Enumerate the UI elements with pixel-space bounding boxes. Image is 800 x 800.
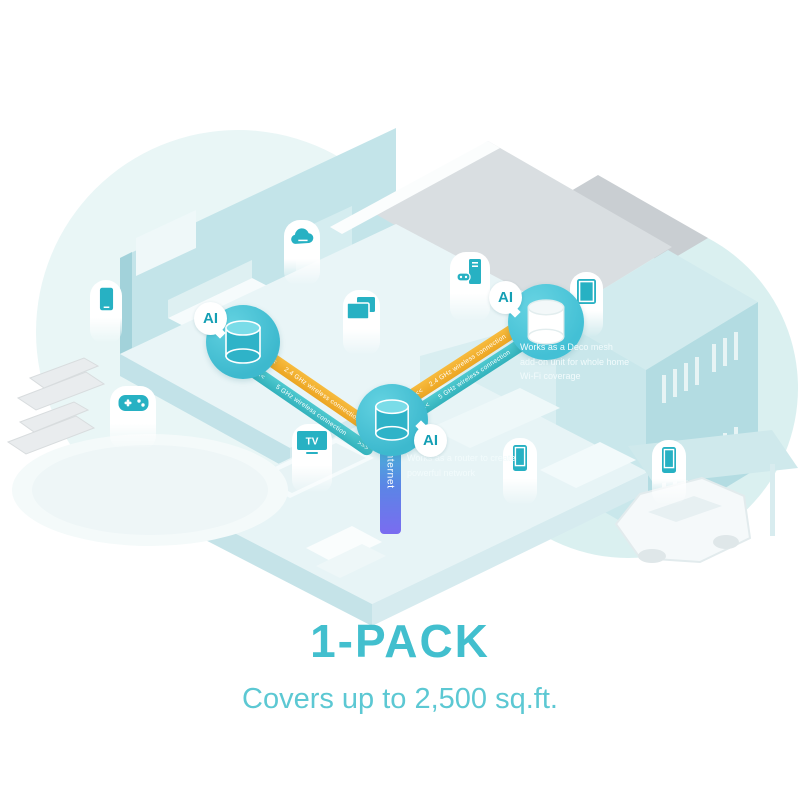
device-pin-phone-bedroom: [90, 280, 122, 343]
smartphone-icon: [99, 287, 114, 311]
device-pin-cloud: [284, 220, 320, 285]
device-pin-tv: TV: [292, 424, 332, 493]
caption-block: 1-PACK Covers up to 2,500 sq.ft.: [0, 614, 800, 716]
smartphone-icon: [661, 447, 677, 473]
ai-badge-upstairs: AI: [194, 302, 227, 335]
ai-badge-addon: AI: [489, 281, 522, 314]
device-pin-gaming-pc: [450, 252, 490, 321]
garage-carport: [616, 430, 798, 563]
gaming-pc-icon: [457, 259, 483, 287]
note-mesh-addon: Works as a Deco mesh add-on unit for who…: [520, 340, 632, 384]
device-pin-phone-garage: [652, 440, 686, 505]
game-controller-icon: [118, 393, 149, 413]
tv-label: TV: [306, 437, 319, 448]
ai-badge-main: AI: [414, 424, 447, 457]
coverage-subtitle: Covers up to 2,500 sq.ft.: [0, 683, 800, 716]
deco-cylinder-icon: [222, 318, 264, 366]
product-illustration-canvas: <<< 2.4 GHz wireless connection >>> <<< …: [0, 0, 800, 800]
device-pin-game-controller: [110, 386, 156, 449]
computer-screens-icon: [347, 297, 377, 323]
tv-icon: TV: [297, 431, 327, 455]
deco-cylinder-icon: [372, 397, 412, 443]
pack-title: 1-PACK: [0, 614, 800, 668]
device-pin-computer-screens: [343, 290, 380, 355]
tablet-icon: [577, 279, 596, 304]
cloud-icon: [289, 227, 315, 246]
